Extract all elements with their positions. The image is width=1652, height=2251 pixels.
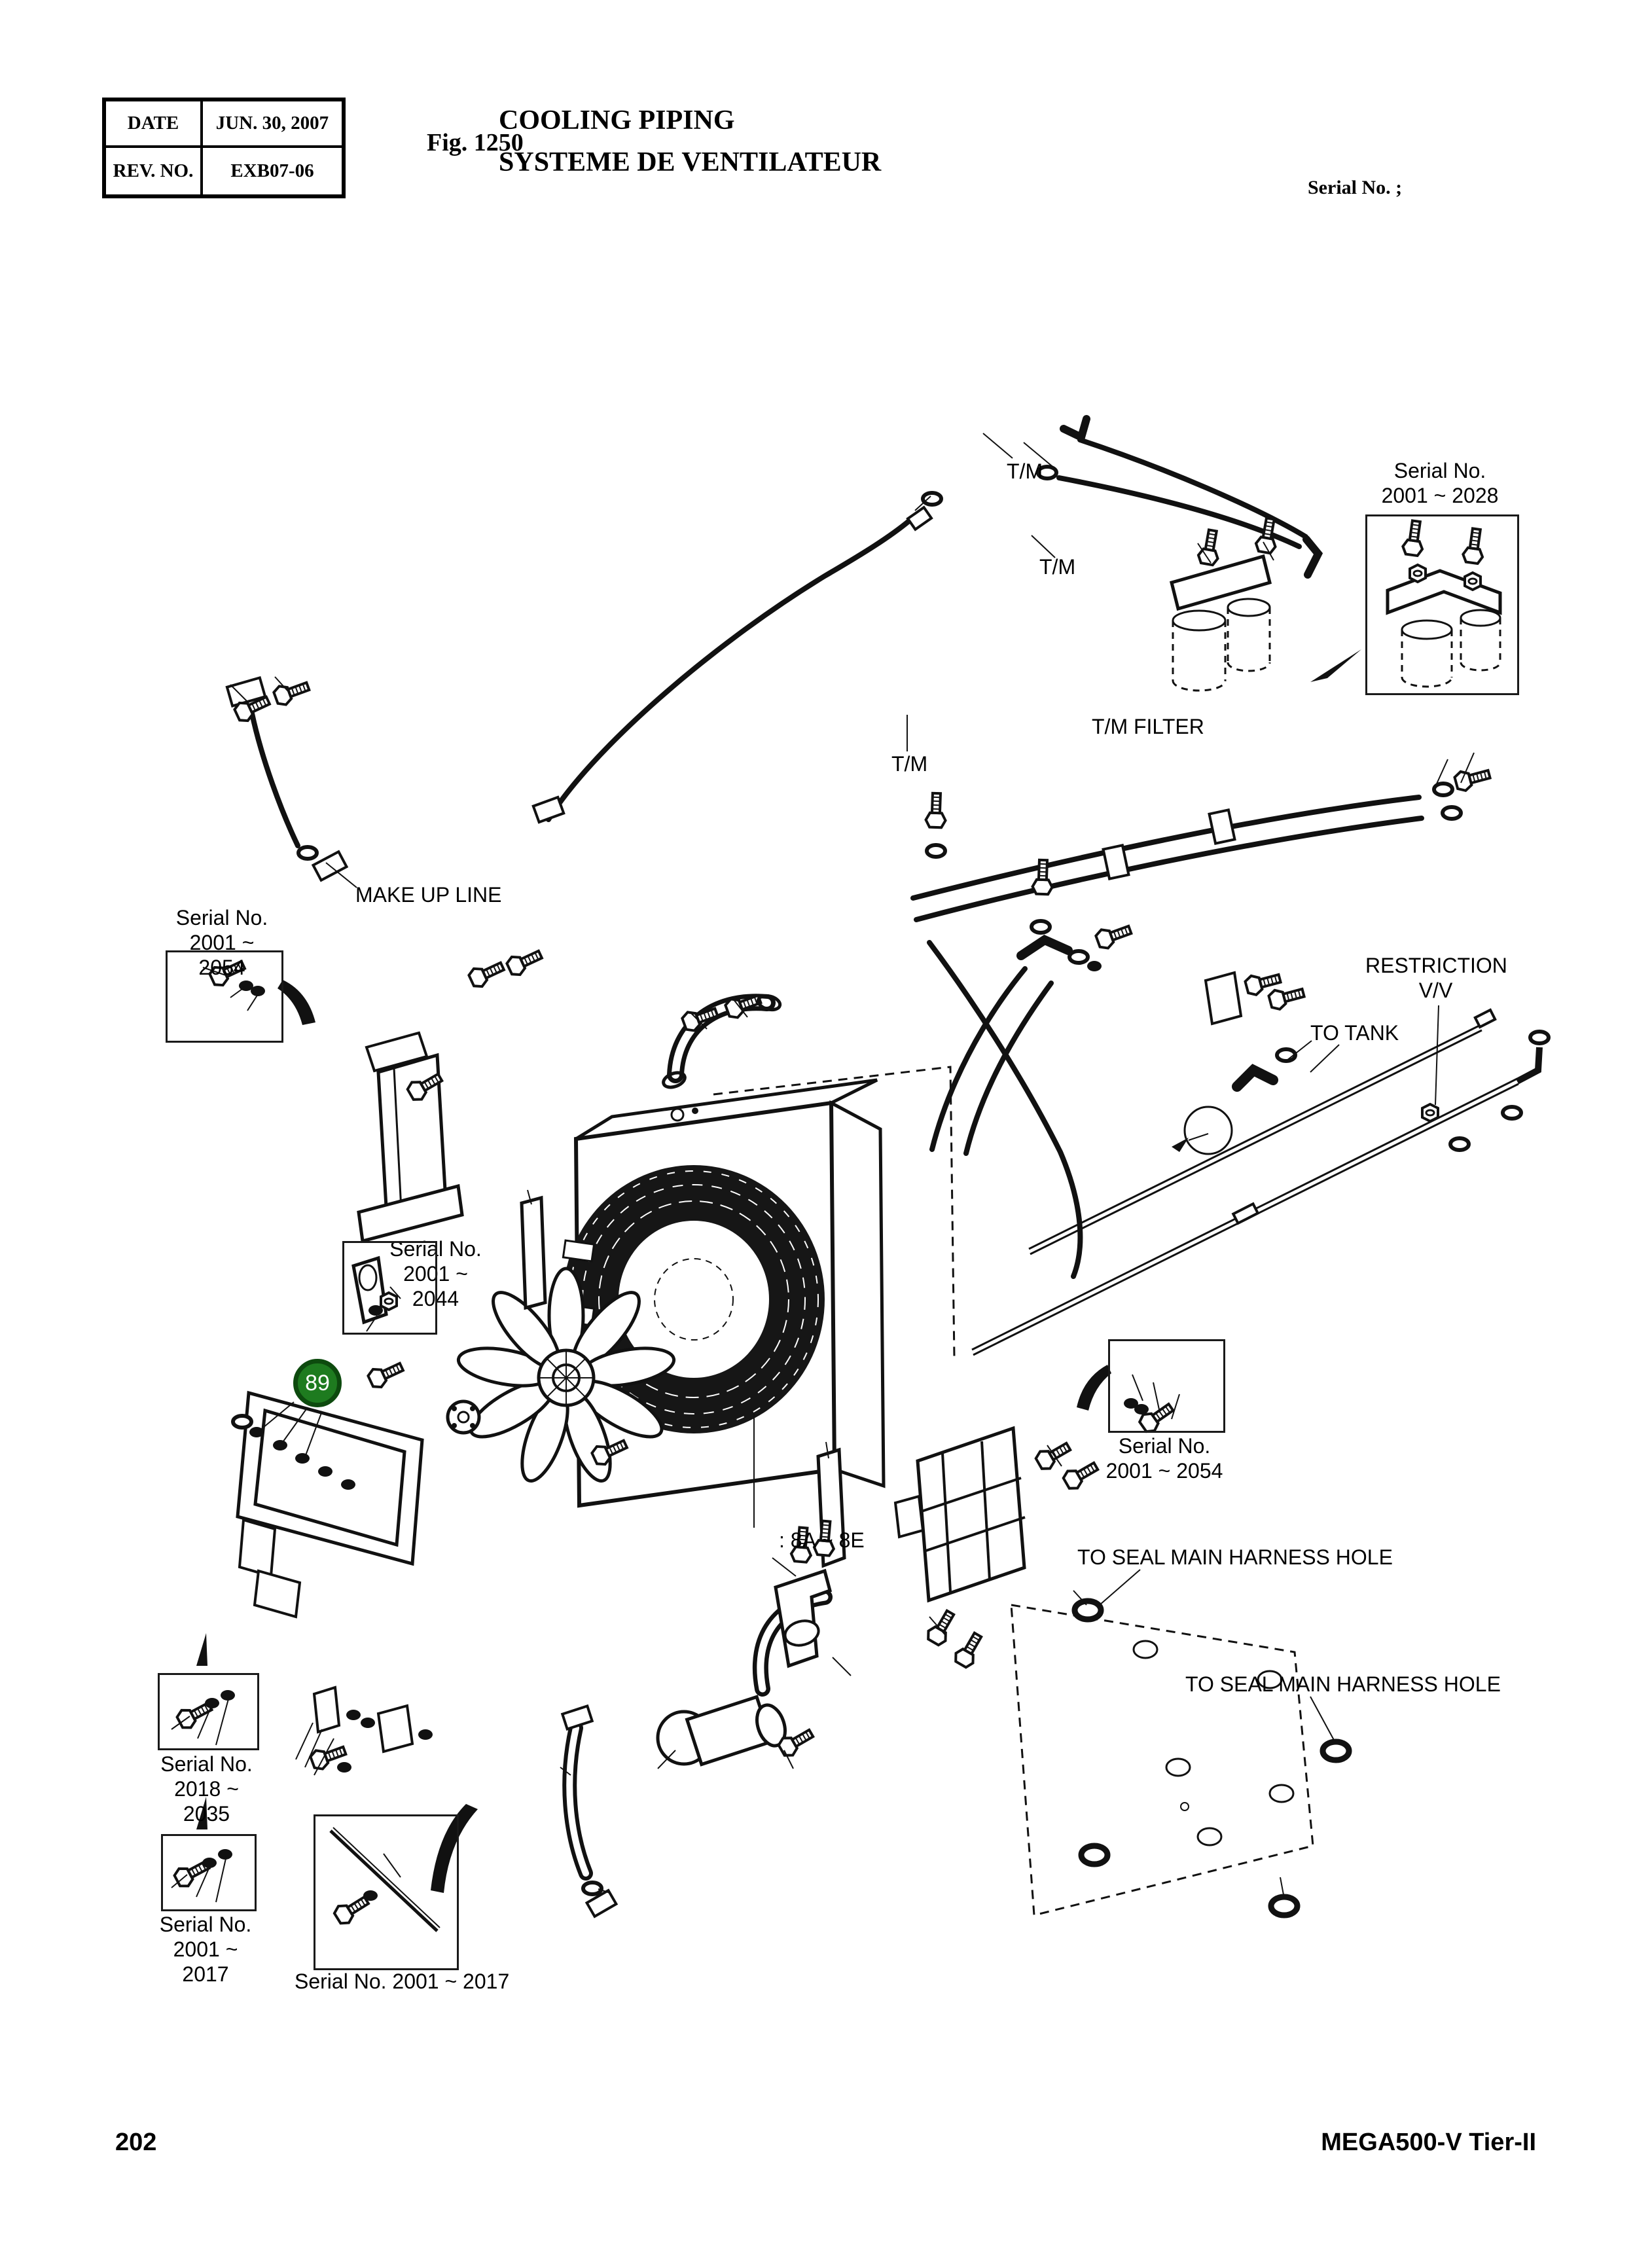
revision-table: DATE JUN. 30, 2007 REV. NO. EXB07-06: [102, 98, 346, 198]
callout-box-center: [342, 1241, 437, 1335]
date-value: JUN. 30, 2007: [203, 101, 342, 148]
label-seal-harness-lower: TO SEAL MAIN HARNESS HOLE: [1185, 1673, 1501, 1695]
callout-text-top-right: Serial No. 2001 ~ 2028: [1361, 458, 1518, 508]
arrowhead: [1172, 1138, 1189, 1152]
title-french: SYSTEME DE VENTILATEUR: [499, 141, 881, 183]
callout-box-left: [166, 950, 283, 1043]
date-label: DATE: [106, 101, 203, 148]
page-number: 202: [115, 2129, 156, 2157]
page-title: COOLING PIPING SYSTEME DE VENTILATEUR: [499, 99, 881, 183]
left-support-bracket: [359, 1033, 462, 1241]
label-range-8a-8e: : 8A ~ 8E: [779, 1529, 865, 1551]
callout-balloon: [1185, 1107, 1232, 1154]
part-number-marker: 89: [293, 1359, 342, 1407]
label-restriction-vv: RESTRICTION V/V: [1365, 953, 1506, 1003]
manifold-cluster: [1021, 859, 1549, 1154]
callout-box-bottom-left-upper: [158, 1673, 259, 1750]
callout-box-bottom-center: [314, 1814, 459, 1970]
label-tm-top: T/M: [1007, 460, 1043, 482]
harness-seal-panel: [1011, 1601, 1349, 1915]
spacer-post: [522, 1198, 545, 1308]
rev-label: REV. NO.: [106, 148, 203, 194]
fan-motor-pump: [658, 1697, 816, 1764]
label-tm-lower: T/M: [891, 753, 927, 775]
manual-page: DATE JUN. 30, 2007 REV. NO. EXB07-06 Fig…: [0, 0, 1652, 2251]
guard-foot-bracket: [240, 1520, 275, 1576]
right-stand-frame: [895, 1428, 1025, 1600]
label-tm-mid: T/M: [1039, 556, 1075, 578]
part-number-value: 89: [305, 1371, 330, 1396]
callout-box-bottom-left-lower: [161, 1834, 257, 1911]
label-seal-harness-upper: TO SEAL MAIN HARNESS HOLE: [1077, 1546, 1393, 1568]
callout-text-bottom-left-upper: Serial No. 2018 ~ 2035: [149, 1752, 264, 1826]
serial-note: Serial No. ;: [1308, 177, 1402, 199]
label-make-up-line: MAKE UP LINE: [355, 884, 501, 906]
callout-text-bottom-left-lower: Serial No. 2001 ~ 2017: [149, 1912, 262, 1987]
callout-box-right: [1108, 1339, 1225, 1433]
callout-box-top-right: [1365, 514, 1519, 695]
callout-text-right: Serial No. 2001 ~ 2054: [1105, 1433, 1224, 1483]
radiator-assembly: [563, 1067, 954, 1505]
callout-text-bottom-center: Serial No. 2001 ~ 2017: [295, 1970, 509, 1992]
label-tm-filter: T/M FILTER: [1092, 715, 1204, 738]
title-english: COOLING PIPING: [499, 99, 881, 141]
rev-value: EXB07-06: [203, 148, 342, 194]
model-name: MEGA500-V Tier-II: [1306, 2129, 1536, 2157]
label-to-tank: TO TANK: [1310, 1022, 1399, 1044]
steel-pipes: [972, 1010, 1539, 1355]
